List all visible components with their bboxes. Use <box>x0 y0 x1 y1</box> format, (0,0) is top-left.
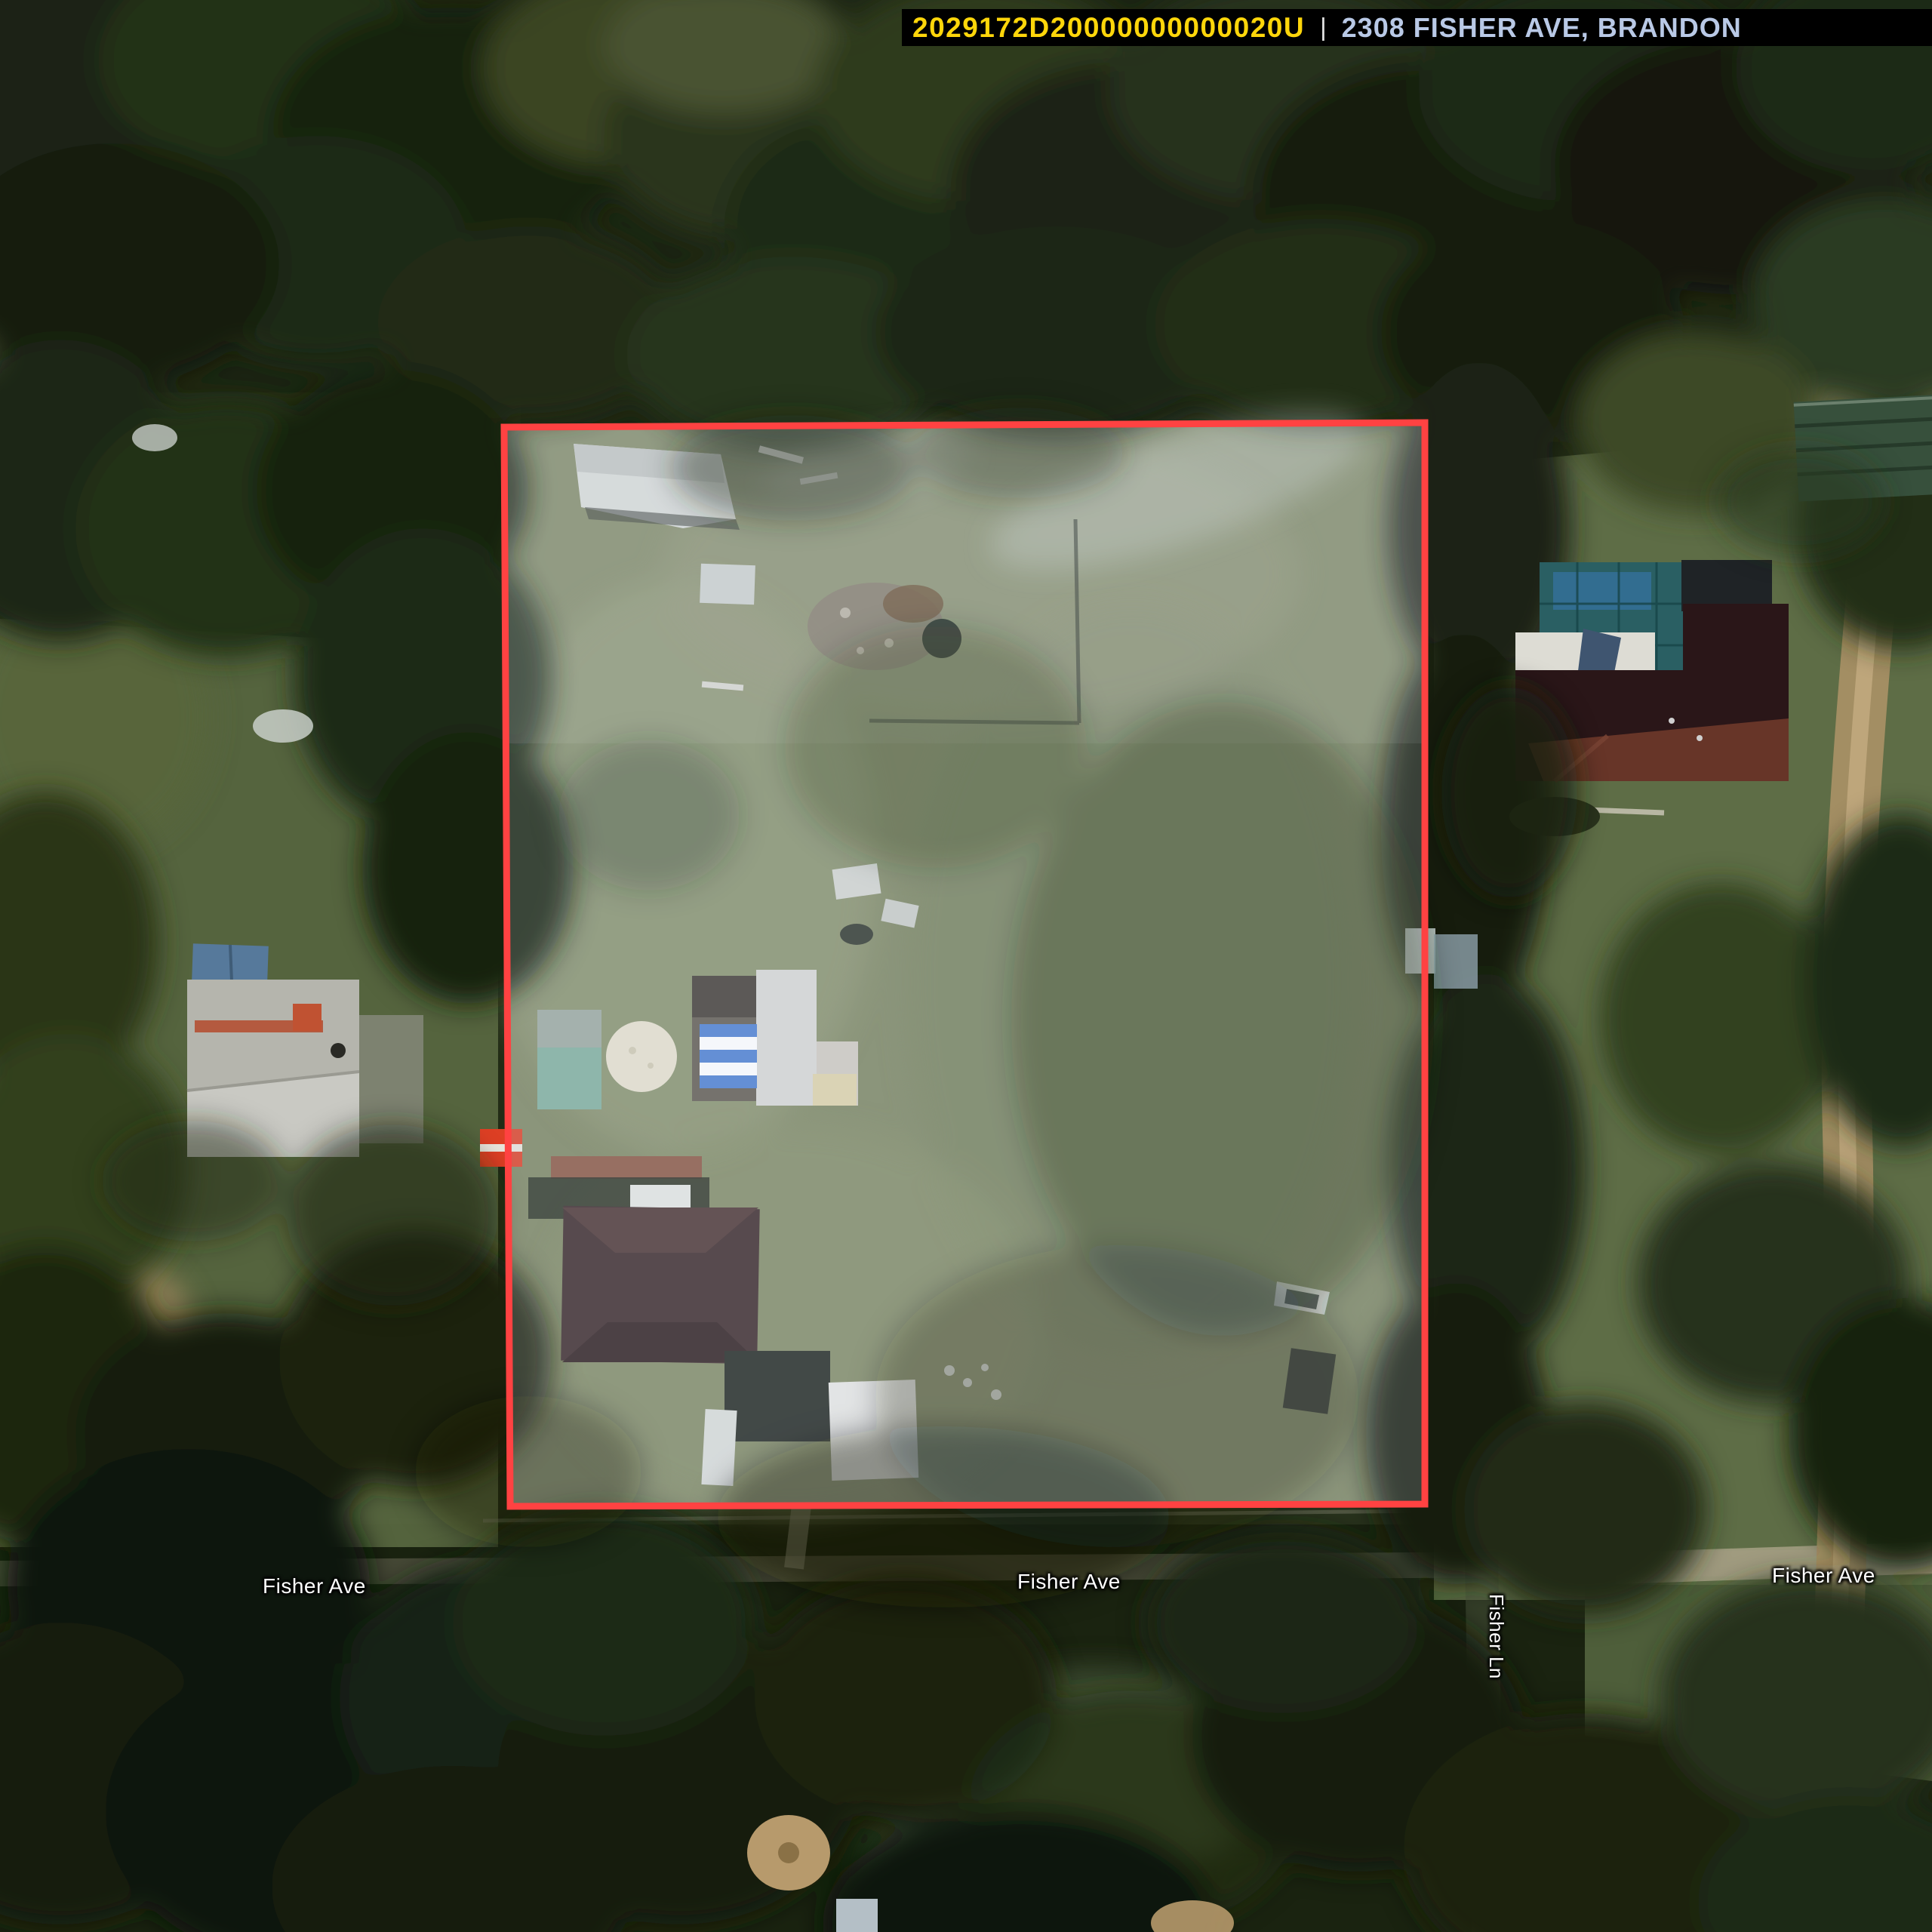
header-bar: 2029172D20000000000020U | 2308 FISHER AV… <box>902 9 1932 46</box>
aerial-imagery <box>0 0 1932 1932</box>
map-canvas[interactable]: Fisher Ave Fisher Ave Fisher Ave Fisher … <box>0 0 1932 1932</box>
street-label-fisher-ave-center: Fisher Ave <box>1017 1570 1121 1594</box>
parcel-boundary[interactable] <box>504 423 1425 1506</box>
property-address: 2308 FISHER AVE, BRANDON <box>1342 9 1742 46</box>
street-label-fisher-ln: Fisher Ln <box>1484 1594 1508 1679</box>
header-separator: | <box>1320 13 1327 42</box>
street-label-fisher-ave-west: Fisher Ave <box>263 1574 366 1598</box>
street-label-fisher-ave-east: Fisher Ave <box>1772 1564 1875 1588</box>
parcel-id: 2029172D20000000000020U <box>912 9 1305 46</box>
